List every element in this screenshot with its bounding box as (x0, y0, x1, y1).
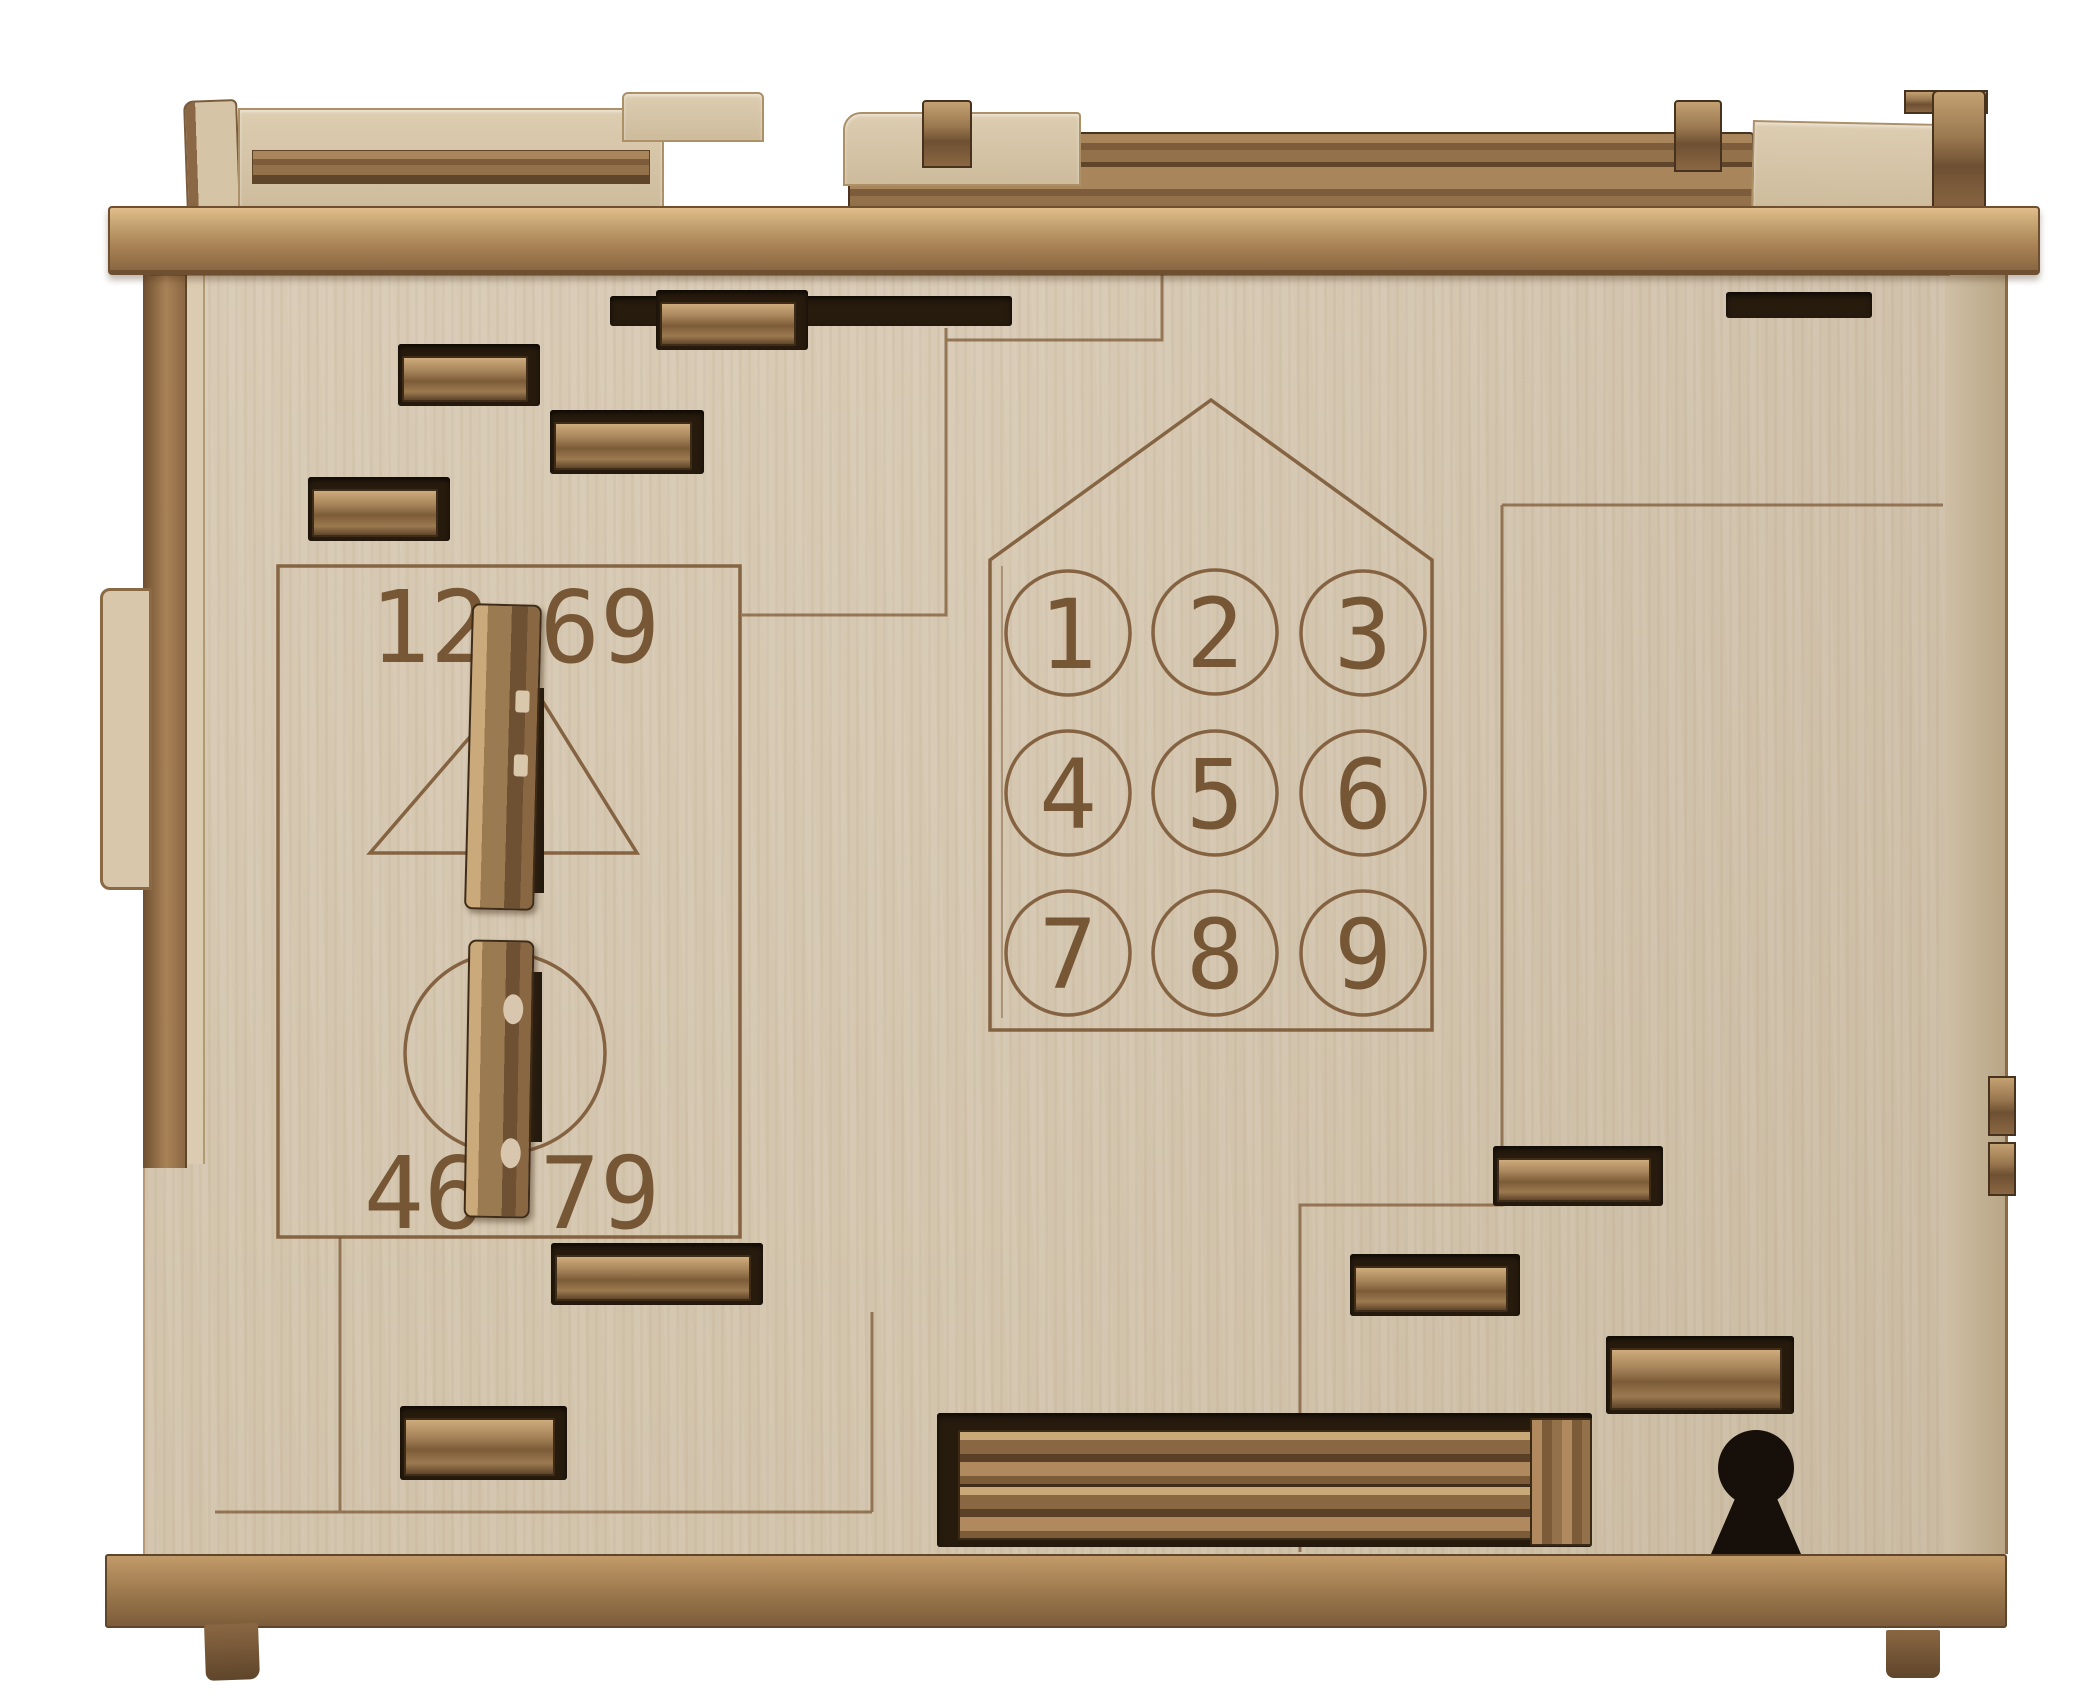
top-peg-right (1674, 100, 1722, 172)
keypad-digit-4: 4 (1039, 739, 1097, 851)
tab-slot-4 (308, 477, 450, 541)
slider-notch (513, 754, 528, 776)
base-foot-left (204, 1623, 260, 1681)
keypad-digit-6: 6 (1334, 739, 1392, 851)
tab-slot-7 (1493, 1146, 1663, 1206)
drawer-end-cap[interactable] (1530, 1418, 1592, 1546)
triangle-slider[interactable] (464, 603, 542, 911)
tab-slat-2 (402, 356, 528, 402)
tab-slot-3 (550, 410, 704, 474)
tab-slat-keyhole (1610, 1348, 1782, 1410)
top-recess-right (1726, 292, 1872, 318)
top-fin-left (183, 99, 241, 215)
tab-slot-6 (400, 1406, 567, 1480)
keypad-digit-3: 3 (1334, 579, 1392, 691)
tab-slat-8 (1354, 1266, 1508, 1312)
engraved-lines (278, 400, 1432, 1237)
keypad-digit-5: 5 (1186, 739, 1244, 851)
keypad-digit-8: 8 (1186, 899, 1244, 1011)
puzzle-box-photo: 12 69 46 79 1 2 3 4 5 6 7 8 9 (0, 0, 2100, 1706)
tab-slat-1 (660, 302, 796, 346)
base-foot-right (1886, 1630, 1940, 1678)
circle-slider[interactable] (464, 939, 535, 1218)
top-peg-center (922, 100, 972, 168)
tab-slat-3 (554, 422, 692, 470)
box-lid[interactable] (108, 206, 2040, 275)
keyhole-icon[interactable] (1711, 1430, 1801, 1554)
tab-slat-4 (312, 489, 438, 537)
slider-hole (503, 994, 524, 1024)
drawer-front-rails[interactable] (958, 1430, 1564, 1540)
tab-slat-5 (555, 1255, 751, 1301)
tab-slot-5 (551, 1243, 763, 1305)
top-plate-left-stripe (252, 150, 650, 184)
tab-slot-keyhole (1606, 1336, 1794, 1414)
tab-slat-7 (1497, 1158, 1651, 1202)
tab-slot-8 (1350, 1254, 1520, 1316)
top-plate-right (1751, 120, 1941, 214)
keypad-digit-7: 7 (1039, 899, 1097, 1011)
tab-slot-2 (398, 344, 540, 406)
keypad-digit-2: 2 (1186, 578, 1244, 690)
dial-label-79: 79 (540, 1135, 660, 1252)
keypad-digit-1: 1 (1039, 579, 1097, 691)
tab-slat-6 (404, 1418, 555, 1476)
slider-notch (515, 690, 530, 712)
tab-slot-1 (656, 290, 808, 350)
box-base (105, 1554, 2007, 1628)
slider-hole (500, 1138, 521, 1168)
keypad-digit-9: 9 (1334, 899, 1392, 1011)
top-corner-fin (1932, 90, 1986, 214)
top-plate-step (622, 92, 764, 142)
dial-label-69: 69 (540, 569, 660, 686)
